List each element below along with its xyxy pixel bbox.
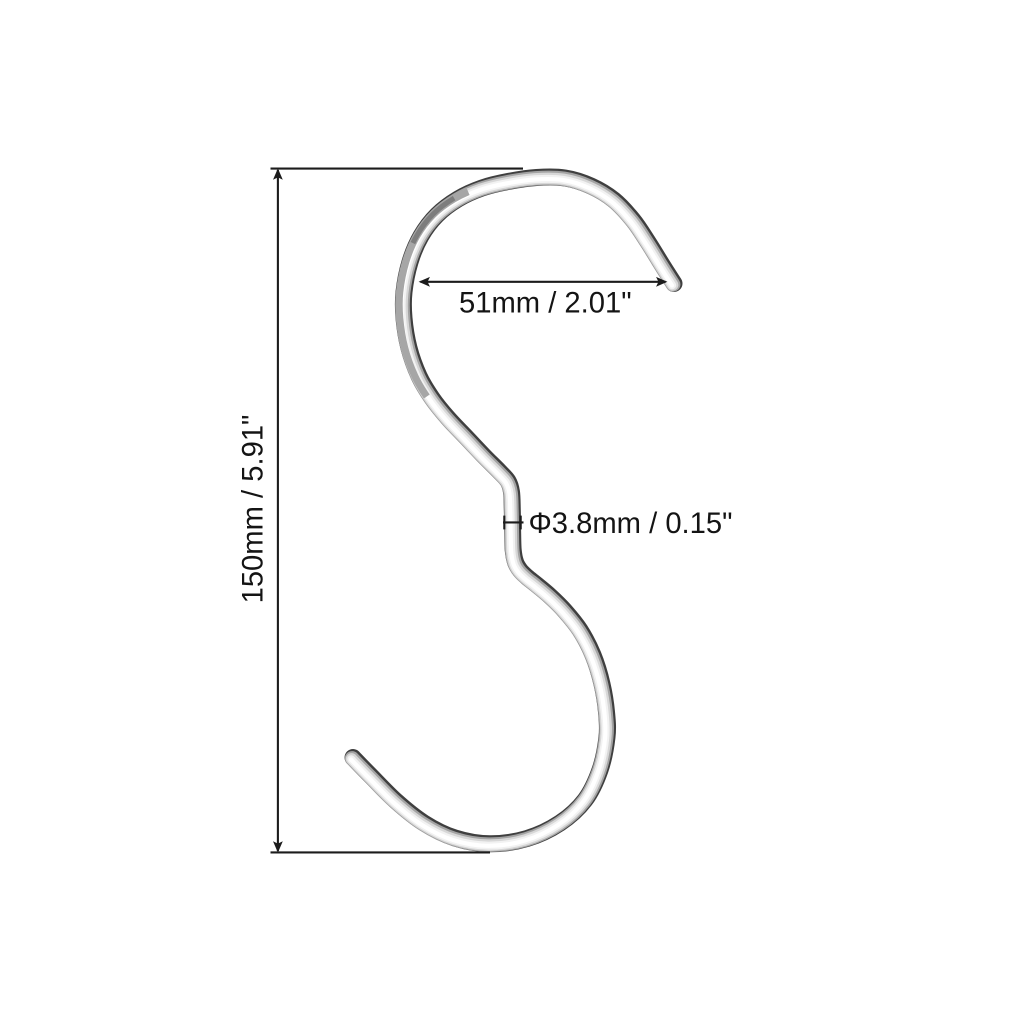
svg-text:51mm / 2.01": 51mm / 2.01" <box>459 288 632 320</box>
svg-text:Φ3.8mm / 0.15": Φ3.8mm / 0.15" <box>529 508 733 540</box>
svg-text:150mm / 5.91": 150mm / 5.91" <box>238 415 270 604</box>
